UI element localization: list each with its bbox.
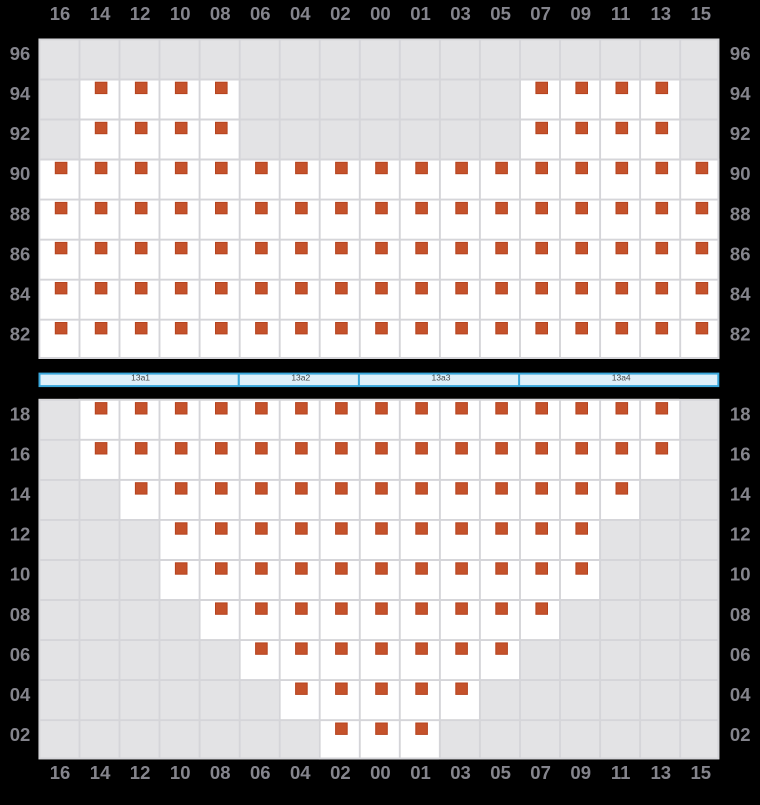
svg-text:06: 06: [10, 644, 31, 665]
svg-text:92: 92: [730, 123, 751, 144]
svg-text:04: 04: [730, 684, 751, 705]
svg-text:96: 96: [10, 43, 31, 64]
svg-text:16: 16: [50, 3, 71, 24]
svg-text:03: 03: [450, 762, 471, 783]
svg-text:06: 06: [250, 762, 271, 783]
svg-text:11: 11: [611, 762, 631, 783]
svg-text:07: 07: [530, 3, 551, 24]
svg-text:03: 03: [450, 3, 471, 24]
svg-text:94: 94: [10, 83, 31, 104]
svg-text:08: 08: [10, 604, 31, 625]
svg-text:14: 14: [10, 484, 31, 505]
svg-text:02: 02: [330, 3, 351, 24]
svg-text:18: 18: [730, 404, 751, 425]
svg-text:14: 14: [90, 3, 111, 24]
svg-text:09: 09: [570, 762, 591, 783]
svg-text:09: 09: [570, 3, 591, 24]
svg-text:13: 13: [651, 3, 672, 24]
svg-text:94: 94: [730, 83, 751, 104]
svg-text:10: 10: [170, 762, 191, 783]
svg-text:12: 12: [130, 3, 151, 24]
svg-text:04: 04: [10, 684, 31, 705]
svg-text:06: 06: [250, 3, 271, 24]
svg-text:02: 02: [730, 724, 751, 745]
svg-text:82: 82: [730, 323, 751, 344]
svg-text:08: 08: [730, 604, 751, 625]
svg-text:04: 04: [290, 762, 311, 783]
svg-text:14: 14: [730, 484, 751, 505]
svg-text:86: 86: [10, 243, 31, 264]
svg-text:12: 12: [130, 762, 151, 783]
svg-text:90: 90: [10, 163, 31, 184]
svg-text:88: 88: [730, 203, 751, 224]
svg-text:14: 14: [90, 762, 111, 783]
svg-text:13a1: 13a1: [131, 372, 150, 382]
svg-text:16: 16: [10, 444, 31, 465]
svg-text:82: 82: [10, 323, 31, 344]
svg-text:11: 11: [611, 3, 631, 24]
svg-text:00: 00: [370, 762, 391, 783]
svg-text:16: 16: [50, 762, 71, 783]
svg-text:10: 10: [730, 564, 751, 585]
svg-text:02: 02: [330, 762, 351, 783]
svg-text:08: 08: [210, 3, 231, 24]
svg-text:92: 92: [10, 123, 31, 144]
svg-text:12: 12: [10, 524, 31, 545]
svg-text:86: 86: [730, 243, 751, 264]
svg-text:02: 02: [10, 724, 31, 745]
svg-text:13a4: 13a4: [612, 372, 631, 382]
svg-text:05: 05: [490, 762, 511, 783]
svg-text:15: 15: [691, 3, 712, 24]
svg-text:18: 18: [10, 404, 31, 425]
svg-text:13a2: 13a2: [291, 372, 310, 382]
svg-text:13: 13: [651, 762, 672, 783]
svg-text:88: 88: [10, 203, 31, 224]
svg-text:15: 15: [691, 762, 712, 783]
svg-text:01: 01: [410, 3, 431, 24]
svg-text:05: 05: [490, 3, 511, 24]
svg-text:06: 06: [730, 644, 751, 665]
svg-text:96: 96: [730, 43, 751, 64]
svg-text:08: 08: [210, 762, 231, 783]
svg-text:84: 84: [10, 283, 31, 304]
svg-text:90: 90: [730, 163, 751, 184]
svg-text:12: 12: [730, 524, 751, 545]
svg-text:01: 01: [410, 762, 431, 783]
svg-text:00: 00: [370, 3, 391, 24]
svg-text:10: 10: [170, 3, 191, 24]
svg-text:13a3: 13a3: [432, 372, 451, 382]
svg-text:10: 10: [10, 564, 31, 585]
svg-text:07: 07: [530, 762, 551, 783]
svg-text:84: 84: [730, 283, 751, 304]
svg-text:04: 04: [290, 3, 311, 24]
svg-text:16: 16: [730, 444, 751, 465]
